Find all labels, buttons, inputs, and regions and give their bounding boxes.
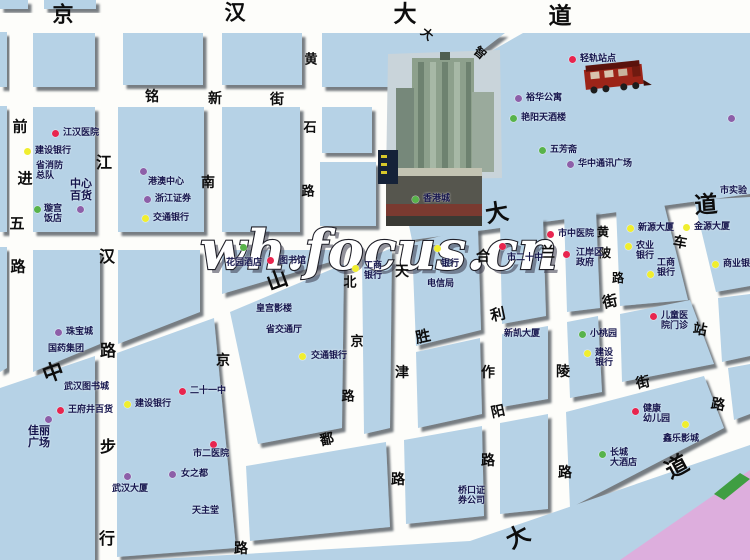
poi-dot-purple xyxy=(77,206,84,213)
city-block xyxy=(320,162,376,226)
poi-label-line: 华中通讯广场 xyxy=(578,159,632,169)
poi-dot-purple xyxy=(140,168,147,175)
poi-label: 艳阳天酒楼 xyxy=(521,113,566,123)
street-name-char: 车 xyxy=(672,235,688,251)
street-name-char: 兰 xyxy=(541,246,555,260)
poi-label-line: 国药集团 xyxy=(48,344,84,354)
city-block xyxy=(222,107,300,232)
city-block xyxy=(718,294,750,362)
street-name-char: 路 xyxy=(612,272,624,284)
street-name-char: 作 xyxy=(481,366,495,380)
city-block xyxy=(728,364,750,420)
poi-dot-purple xyxy=(728,115,735,122)
poi-label: 商业银行 xyxy=(723,259,750,269)
poi-dot-yellow xyxy=(682,421,689,428)
street-name-char: 街 xyxy=(635,375,652,392)
poi-dot-red xyxy=(210,441,217,448)
poi-label: 电信局 xyxy=(427,279,454,289)
poi-label-line: 小桃园 xyxy=(590,329,617,339)
poi-label-line: 儿童医 xyxy=(661,311,688,321)
poi-label: 二十一中 xyxy=(190,386,226,396)
poi-label-line: 银行 xyxy=(441,259,459,269)
poi-label: 建设银行 xyxy=(595,348,613,368)
street-name-char: 街 xyxy=(270,93,284,107)
poi-label-line: 新凯大厦 xyxy=(504,329,540,339)
street-name-char: 步 xyxy=(100,439,116,455)
poi-label-line: 工商 xyxy=(364,261,382,271)
poi-label: 浙江证券 xyxy=(155,194,191,204)
poi-label: 省交通厅 xyxy=(266,325,302,335)
poi-label: 图书馆 xyxy=(279,256,306,266)
poi-dot-yellow xyxy=(142,215,149,222)
street-name-char: 路 xyxy=(481,454,495,468)
poi-label: 市二十中 xyxy=(507,253,543,263)
poi-label: 农业银行 xyxy=(636,241,654,261)
poi-label: 市实验 xyxy=(720,186,747,196)
poi-label-line: 浙江证券 xyxy=(155,194,191,204)
street-name-char: 阳 xyxy=(490,404,507,421)
poi-dot-yellow xyxy=(24,148,31,155)
poi-label-line: 大酒店 xyxy=(610,458,637,468)
street-name-char: 五 xyxy=(9,217,24,232)
poi-label-line: 工商 xyxy=(657,258,675,268)
poi-dot-red xyxy=(57,407,64,414)
poi-label-line: 电信局 xyxy=(427,279,454,289)
poi-label-line: 香港城 xyxy=(423,194,450,204)
poi-label-line: 农业 xyxy=(636,241,654,251)
street-name-char: 利 xyxy=(489,306,507,324)
poi-label: 桥口证券公司 xyxy=(458,486,485,506)
street-name-char: 路 xyxy=(301,186,314,199)
poi-label-line: 王府井百货 xyxy=(68,405,113,415)
poi-dot-yellow xyxy=(299,353,306,360)
poi-dot-red xyxy=(632,408,639,415)
street-name-char: 鄱 xyxy=(319,432,336,449)
poi-dot-red xyxy=(569,56,576,63)
poi-label-line: 港澳中心 xyxy=(148,177,184,187)
poi-label: 建设银行 xyxy=(35,146,71,156)
poi-label: 国药集团 xyxy=(48,344,84,354)
poi-dot-red xyxy=(547,231,554,238)
poi-label-line: 皇宫影楼 xyxy=(256,304,292,314)
poi-label-line: 市实验 xyxy=(720,186,747,196)
poi-label: 新源大厦 xyxy=(638,223,674,233)
poi-label-line: 市二十中 xyxy=(507,253,543,263)
poi-label-line: 建设银行 xyxy=(135,399,171,409)
poi-label: 银行 xyxy=(441,259,459,269)
poi-label: 璇宫饭店 xyxy=(44,204,62,224)
poi-dot-yellow xyxy=(625,243,632,250)
poi-dot-purple xyxy=(515,95,522,102)
street-name-char: 江 xyxy=(96,155,112,171)
poi-label-line: 券公司 xyxy=(458,496,485,506)
poi-label-line: 总队 xyxy=(36,171,63,181)
street-name-char: 进 xyxy=(17,172,32,187)
poi-label: 轻轨站点 xyxy=(580,54,616,64)
poi-label: 建设银行 xyxy=(135,399,171,409)
city-map: wh.focus.cn wh.focus.cn 京汉大道铭新街前进五路江汉路步行… xyxy=(0,0,750,560)
city-block xyxy=(222,33,302,85)
poi-label: 工商银行 xyxy=(364,261,382,281)
poi-label: 武汉图书城 xyxy=(64,382,109,392)
street-name-char: 大 xyxy=(484,200,511,227)
street-name-char: 南 xyxy=(201,176,215,190)
poi-label: 中心百货 xyxy=(70,178,92,203)
street-name-char: 路 xyxy=(234,542,248,556)
street-name-char: 黄 xyxy=(597,226,609,238)
poi-label-line: 女之都 xyxy=(181,469,208,479)
poi-label: 花园酒店 xyxy=(226,258,262,268)
city-block xyxy=(0,32,7,87)
poi-label: 江岸区政府 xyxy=(576,248,603,268)
poi-label: 鑫乐影城 xyxy=(663,434,699,444)
city-block xyxy=(33,33,95,87)
poi-label-line: 璇宫 xyxy=(44,204,62,214)
street-name-char: 路 xyxy=(341,391,354,404)
street-name-char: 站 xyxy=(692,322,708,338)
poi-dot-yellow xyxy=(124,401,131,408)
poi-label-line: 建设 xyxy=(595,348,613,358)
poi-dot-yellow xyxy=(434,245,441,252)
poi-label-line: 武汉大厦 xyxy=(112,484,148,494)
street-name-char: 北 xyxy=(343,277,356,290)
poi-label-line: 省交通厅 xyxy=(266,325,302,335)
poi-label: 工商银行 xyxy=(657,258,675,278)
street-name-char: 汉 xyxy=(225,2,246,23)
poi-label-line: 长城 xyxy=(610,448,637,458)
poi-label-line: 银行 xyxy=(636,251,654,261)
poi-label-line: 江汉医院 xyxy=(63,128,99,138)
poi-dot-red xyxy=(563,251,570,258)
city-block xyxy=(123,33,203,85)
street-name-char: 京 xyxy=(216,354,230,368)
poi-dot-red xyxy=(650,313,657,320)
poi-label: 五芳斋 xyxy=(550,145,577,155)
poi-dot-purple xyxy=(45,416,52,423)
city-block xyxy=(0,0,28,9)
street-name-char: 津 xyxy=(395,366,409,380)
poi-label-line: 市中医院 xyxy=(558,229,594,239)
poi-label-line: 珠宝城 xyxy=(66,327,93,337)
street-name-char: 路 xyxy=(558,466,572,480)
poi-label-line: 艳阳天酒楼 xyxy=(521,113,566,123)
poi-label: 天主堂 xyxy=(192,506,219,516)
poi-label: 健康幼儿园 xyxy=(643,404,670,424)
poi-dot-green xyxy=(412,196,419,203)
poi-label-line: 五芳斋 xyxy=(550,145,577,155)
poi-label: 华中通讯广场 xyxy=(578,159,632,169)
poi-label-line: 广场 xyxy=(28,437,50,449)
poi-label: 佳丽广场 xyxy=(28,425,50,450)
poi-label: 裕华公寓 xyxy=(526,93,562,103)
poi-label: 儿童医院门诊 xyxy=(661,311,688,331)
street-name-char: 铭 xyxy=(145,90,159,104)
poi-label: 长城大酒店 xyxy=(610,448,637,468)
street-name-char: 胜 xyxy=(414,328,432,346)
poi-label-line: 银行 xyxy=(595,358,613,368)
poi-dot-yellow xyxy=(627,225,634,232)
poi-label-line: 武汉图书城 xyxy=(64,382,109,392)
poi-label: 王府井百货 xyxy=(68,405,113,415)
poi-dot-green xyxy=(510,115,517,122)
poi-label-line: 市二医院 xyxy=(193,449,229,459)
poi-label: 江汉医院 xyxy=(63,128,99,138)
street-name-char: 汉 xyxy=(99,249,115,265)
city-block xyxy=(0,106,7,232)
poi-dot-yellow xyxy=(584,350,591,357)
street-name-char: 京 xyxy=(350,336,363,349)
poi-dot-green xyxy=(240,244,247,251)
street-name-char: 合 xyxy=(476,250,490,264)
poi-label: 省消防总队 xyxy=(36,161,63,181)
poi-label-line: 图书馆 xyxy=(279,256,306,266)
poi-dot-green xyxy=(599,451,606,458)
poi-dot-yellow xyxy=(712,261,719,268)
city-block xyxy=(322,107,372,153)
street-name-char: 新 xyxy=(208,92,222,106)
poi-label-line: 新源大厦 xyxy=(638,223,674,233)
poi-label-line: 二十一中 xyxy=(190,386,226,396)
poi-label-line: 商业银行 xyxy=(723,259,750,269)
city-block xyxy=(500,217,546,324)
poi-label: 女之都 xyxy=(181,469,208,479)
poi-dot-purple xyxy=(55,329,62,336)
street-name-char: 前 xyxy=(12,120,27,135)
poi-label-line: 政府 xyxy=(576,258,603,268)
poi-label: 交通银行 xyxy=(311,351,347,361)
poi-label: 珠宝城 xyxy=(66,327,93,337)
street-name-char: 石 xyxy=(303,122,316,135)
poi-label: 港澳中心 xyxy=(148,177,184,187)
city-block xyxy=(0,247,7,372)
poi-dot-yellow xyxy=(647,271,654,278)
poi-dot-yellow xyxy=(352,265,359,272)
poi-dot-purple xyxy=(567,161,574,168)
poi-label-line: 交通银行 xyxy=(311,351,347,361)
poi-label: 香港城 xyxy=(423,194,450,204)
poi-label-line: 金源大厦 xyxy=(694,222,730,232)
poi-label-line: 桥口证 xyxy=(458,486,485,496)
poi-dot-red xyxy=(52,130,59,137)
poi-label-line: 省消防 xyxy=(36,161,63,171)
poi-dot-green xyxy=(579,331,586,338)
poi-dot-green xyxy=(539,147,546,154)
poi-dot-red xyxy=(179,388,186,395)
poi-label: 金源大厦 xyxy=(694,222,730,232)
city-block xyxy=(500,414,548,514)
poi-label: 市二医院 xyxy=(193,449,229,459)
city-block xyxy=(404,426,484,524)
street-name-char: 路 xyxy=(391,473,405,487)
poi-dot-purple xyxy=(169,471,176,478)
poi-label-line: 鑫乐影城 xyxy=(663,434,699,444)
poi-label-line: 银行 xyxy=(657,268,675,278)
poi-label: 武汉大厦 xyxy=(112,484,148,494)
street-name-char: 道 xyxy=(694,193,719,218)
poi-label-line: 交通银行 xyxy=(153,213,189,223)
poi-label: 交通银行 xyxy=(153,213,189,223)
poi-label-line: 花园酒店 xyxy=(226,258,262,268)
poi-label-line: 百货 xyxy=(70,190,92,202)
poi-dot-green xyxy=(34,206,41,213)
city-block xyxy=(246,442,390,541)
poi-label-line: 银行 xyxy=(364,271,382,281)
poi-dot-purple xyxy=(124,473,131,480)
street-name-char: 天 xyxy=(395,265,409,279)
poi-dot-yellow xyxy=(683,224,690,231)
poi-label-line: 饭店 xyxy=(44,214,62,224)
street-name-char: 陵 xyxy=(556,365,570,379)
poi-label-line: 幼儿园 xyxy=(643,414,670,424)
street-name-char: 路 xyxy=(10,260,25,275)
street-name-char: 京 xyxy=(53,4,74,25)
poi-label-line: 天主堂 xyxy=(192,506,219,516)
poi-label: 新凯大厦 xyxy=(504,329,540,339)
street-name-char: 路 xyxy=(100,343,116,359)
poi-dot-purple xyxy=(144,196,151,203)
poi-label-line: 建设银行 xyxy=(35,146,71,156)
city-block xyxy=(416,338,482,428)
poi-label-line: 江岸区 xyxy=(576,248,603,258)
poi-label-line: 健康 xyxy=(643,404,670,414)
street-name-char: 黄 xyxy=(304,54,317,67)
poi-label: 皇宫影楼 xyxy=(256,304,292,314)
street-name-char: 街 xyxy=(601,293,619,311)
poi-label: 市中医院 xyxy=(558,229,594,239)
poi-dot-red xyxy=(267,257,274,264)
poi-label: 小桃园 xyxy=(590,329,617,339)
poi-label-line: 轻轨站点 xyxy=(580,54,616,64)
poi-dot-red xyxy=(499,243,506,250)
poi-label-line: 院门诊 xyxy=(661,321,688,331)
street-name-char: 行 xyxy=(99,531,115,547)
street-name-char: 大 xyxy=(394,3,417,26)
street-name-char: 道 xyxy=(549,5,572,28)
street-name-char: 路 xyxy=(710,397,726,413)
poi-label-line: 裕华公寓 xyxy=(526,93,562,103)
